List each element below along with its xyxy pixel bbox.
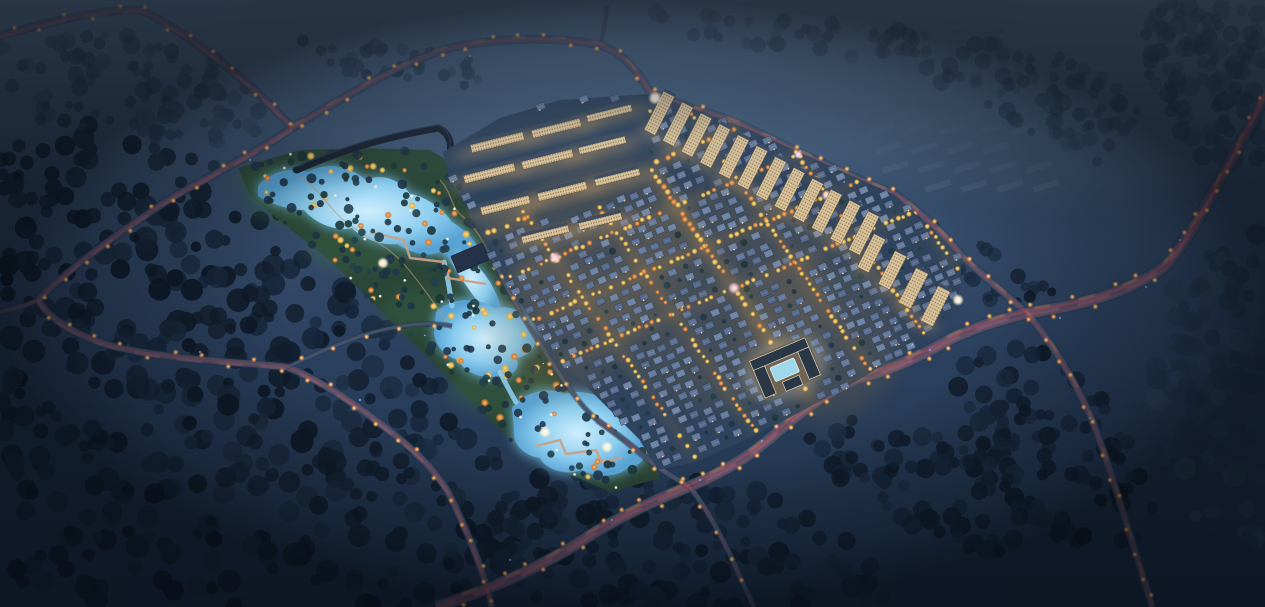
vignette [0,0,1265,607]
rendering-canvas [0,0,1265,607]
night-aerial-rendering [0,0,1265,607]
